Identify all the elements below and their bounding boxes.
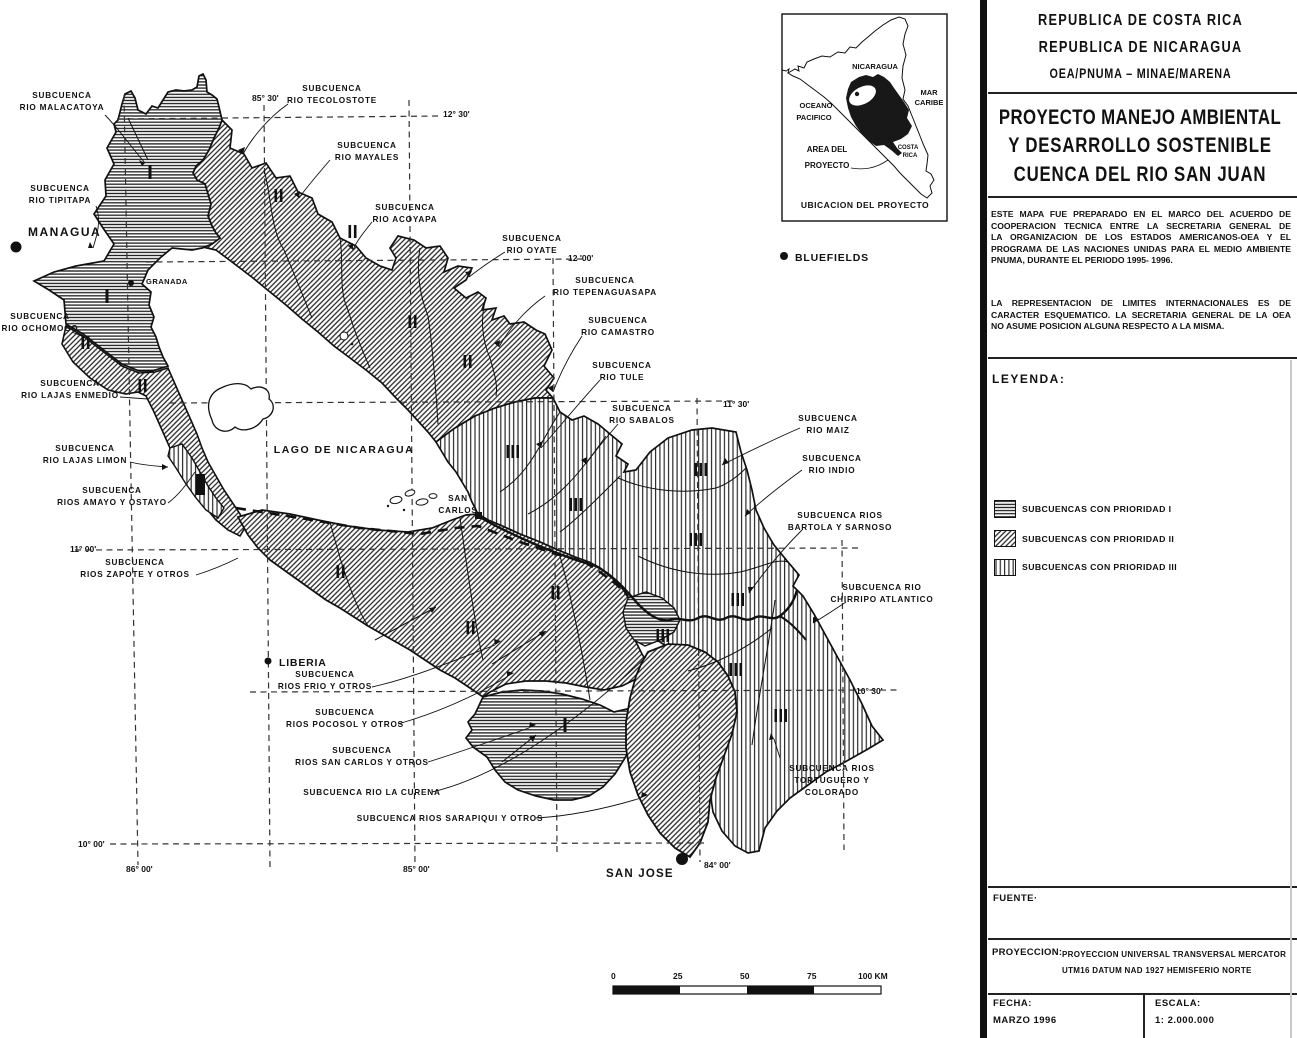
svg-text:RIO CAMASTRO: RIO CAMASTRO bbox=[581, 328, 655, 337]
svg-text:MANAGUA: MANAGUA bbox=[28, 225, 101, 239]
svg-text:RICA: RICA bbox=[903, 153, 918, 159]
svg-text:CARIBE: CARIBE bbox=[915, 98, 944, 107]
svg-text:LIBERIA: LIBERIA bbox=[279, 657, 327, 669]
svg-text:10° 30': 10° 30' bbox=[856, 686, 883, 696]
svg-text:SUBCUENCA: SUBCUENCA bbox=[55, 444, 115, 453]
svg-text:RIOS ZAPOTE Y OTROS: RIOS ZAPOTE Y OTROS bbox=[80, 570, 190, 579]
svg-text:SUBCUENCA: SUBCUENCA bbox=[332, 746, 392, 755]
svg-text:85° 00': 85° 00' bbox=[403, 864, 430, 874]
svg-text:12° 30': 12° 30' bbox=[443, 109, 470, 119]
svg-text:UBICACION DEL PROYECTO: UBICACION DEL PROYECTO bbox=[801, 200, 929, 210]
svg-text:SUBCUENCA: SUBCUENCA bbox=[802, 454, 862, 463]
svg-text:RIO OCHOMOGO: RIO OCHOMOGO bbox=[2, 324, 79, 333]
svg-text:SUBCUENCA: SUBCUENCA bbox=[502, 234, 562, 243]
svg-text:85° 30': 85° 30' bbox=[252, 93, 279, 103]
svg-text:RIO OYATE: RIO OYATE bbox=[507, 246, 558, 255]
svg-text:SUBCUENCA: SUBCUENCA bbox=[295, 670, 355, 679]
svg-text:RIO MAYALES: RIO MAYALES bbox=[335, 153, 399, 162]
svg-text:NICARAGUA: NICARAGUA bbox=[852, 62, 898, 71]
svg-text:25: 25 bbox=[673, 971, 683, 981]
svg-text:RIO TEPENAGUASAPA: RIO TEPENAGUASAPA bbox=[553, 288, 657, 297]
svg-text:SUBCUENCA: SUBCUENCA bbox=[315, 708, 375, 717]
svg-text:TORTUGUERO Y: TORTUGUERO Y bbox=[794, 776, 869, 785]
svg-text:SUBCUENCA RIO: SUBCUENCA RIO bbox=[842, 583, 921, 592]
svg-text:SUBCUENCA: SUBCUENCA bbox=[32, 91, 92, 100]
svg-text:RIO MAIZ: RIO MAIZ bbox=[806, 426, 849, 435]
svg-text:MAR: MAR bbox=[920, 88, 938, 97]
svg-text:11° 00': 11° 00' bbox=[70, 544, 96, 554]
svg-text:RIO INDIO: RIO INDIO bbox=[809, 466, 856, 475]
svg-text:SUBCUENCA: SUBCUENCA bbox=[375, 203, 435, 212]
svg-text:GRANADA: GRANADA bbox=[146, 277, 188, 286]
svg-text:SUBCUENCA: SUBCUENCA bbox=[592, 361, 652, 370]
svg-text:RIO TECOLOSTOTE: RIO TECOLOSTOTE bbox=[287, 96, 377, 105]
svg-text:SUBCUENCA: SUBCUENCA bbox=[612, 404, 672, 413]
svg-text:SUBCUENCA: SUBCUENCA bbox=[337, 141, 397, 150]
svg-text:RIO SABALOS: RIO SABALOS bbox=[609, 416, 675, 425]
svg-text:86° 00': 86° 00' bbox=[126, 864, 153, 874]
svg-text:12 '00': 12 '00' bbox=[568, 253, 593, 263]
svg-text:RIO LAJAS ENMEDIO: RIO LAJAS ENMEDIO bbox=[21, 391, 119, 400]
svg-text:50: 50 bbox=[740, 971, 750, 981]
svg-text:RIOS AMAYO Y OSTAYO: RIOS AMAYO Y OSTAYO bbox=[57, 498, 167, 507]
svg-text:SUBCUENCA RIOS: SUBCUENCA RIOS bbox=[797, 511, 883, 520]
svg-text:PROYECTO: PROYECTO bbox=[805, 161, 850, 170]
svg-text:84° 00': 84° 00' bbox=[704, 860, 731, 870]
svg-text:RIO TULE: RIO TULE bbox=[600, 373, 645, 382]
svg-text:SUBCUENCA: SUBCUENCA bbox=[10, 312, 70, 321]
svg-text:RIO LAJAS LIMON: RIO LAJAS LIMON bbox=[43, 456, 127, 465]
svg-text:SUBCUENCA: SUBCUENCA bbox=[40, 379, 100, 388]
svg-text:RIO MALACATOYA: RIO MALACATOYA bbox=[20, 103, 105, 112]
svg-text:CHIRRIPO ATLANTICO: CHIRRIPO ATLANTICO bbox=[830, 595, 933, 604]
svg-text:OCEANO: OCEANO bbox=[800, 101, 833, 110]
svg-text:0: 0 bbox=[611, 971, 616, 981]
svg-text:75: 75 bbox=[807, 971, 817, 981]
svg-text:CARLOS: CARLOS bbox=[438, 506, 477, 515]
svg-text:SUBCUENCA: SUBCUENCA bbox=[588, 316, 648, 325]
svg-text:SUBCUENCA: SUBCUENCA bbox=[575, 276, 635, 285]
svg-text:SUBCUENCA RIOS: SUBCUENCA RIOS bbox=[789, 764, 875, 773]
svg-text:LAGO DE NICARAGUA: LAGO DE NICARAGUA bbox=[274, 444, 414, 456]
svg-text:RIO ACOYAPA: RIO ACOYAPA bbox=[373, 215, 438, 224]
svg-text:BARTOLA Y SARNOSO: BARTOLA Y SARNOSO bbox=[788, 523, 892, 532]
svg-text:COSTA: COSTA bbox=[898, 145, 919, 151]
svg-text:AREA DEL: AREA DEL bbox=[807, 145, 848, 154]
svg-text:RIOS SAN CARLOS Y OTROS: RIOS SAN CARLOS Y OTROS bbox=[295, 758, 429, 767]
svg-text:RIO TIPITAPA: RIO TIPITAPA bbox=[29, 196, 92, 205]
svg-text:100 KM: 100 KM bbox=[858, 971, 888, 981]
svg-text:RIOS FRIO Y OTROS: RIOS FRIO Y OTROS bbox=[278, 682, 372, 691]
svg-text:SUBCUENCA RIO LA CURENA: SUBCUENCA RIO LA CURENA bbox=[303, 788, 440, 797]
svg-text:BLUEFIELDS: BLUEFIELDS bbox=[795, 252, 869, 264]
svg-text:10° 00': 10° 00' bbox=[78, 839, 105, 849]
svg-text:COLORADO: COLORADO bbox=[805, 788, 859, 797]
svg-text:SUBCUENCA: SUBCUENCA bbox=[105, 558, 165, 567]
svg-text:SUBCUENCA: SUBCUENCA bbox=[798, 414, 858, 423]
svg-text:SAN: SAN bbox=[448, 494, 468, 503]
svg-text:SUBCUENCA: SUBCUENCA bbox=[302, 84, 362, 93]
svg-text:PACIFICO: PACIFICO bbox=[796, 113, 831, 122]
svg-text:SUBCUENCA: SUBCUENCA bbox=[82, 486, 142, 495]
svg-text:SAN JOSE: SAN JOSE bbox=[606, 868, 674, 880]
svg-text:SUBCUENCA RIOS SARAPIQUI Y OTR: SUBCUENCA RIOS SARAPIQUI Y OTROS bbox=[357, 814, 544, 823]
svg-text:RIOS POCOSOL Y OTROS: RIOS POCOSOL Y OTROS bbox=[286, 720, 404, 729]
svg-text:SUBCUENCA: SUBCUENCA bbox=[30, 184, 90, 193]
